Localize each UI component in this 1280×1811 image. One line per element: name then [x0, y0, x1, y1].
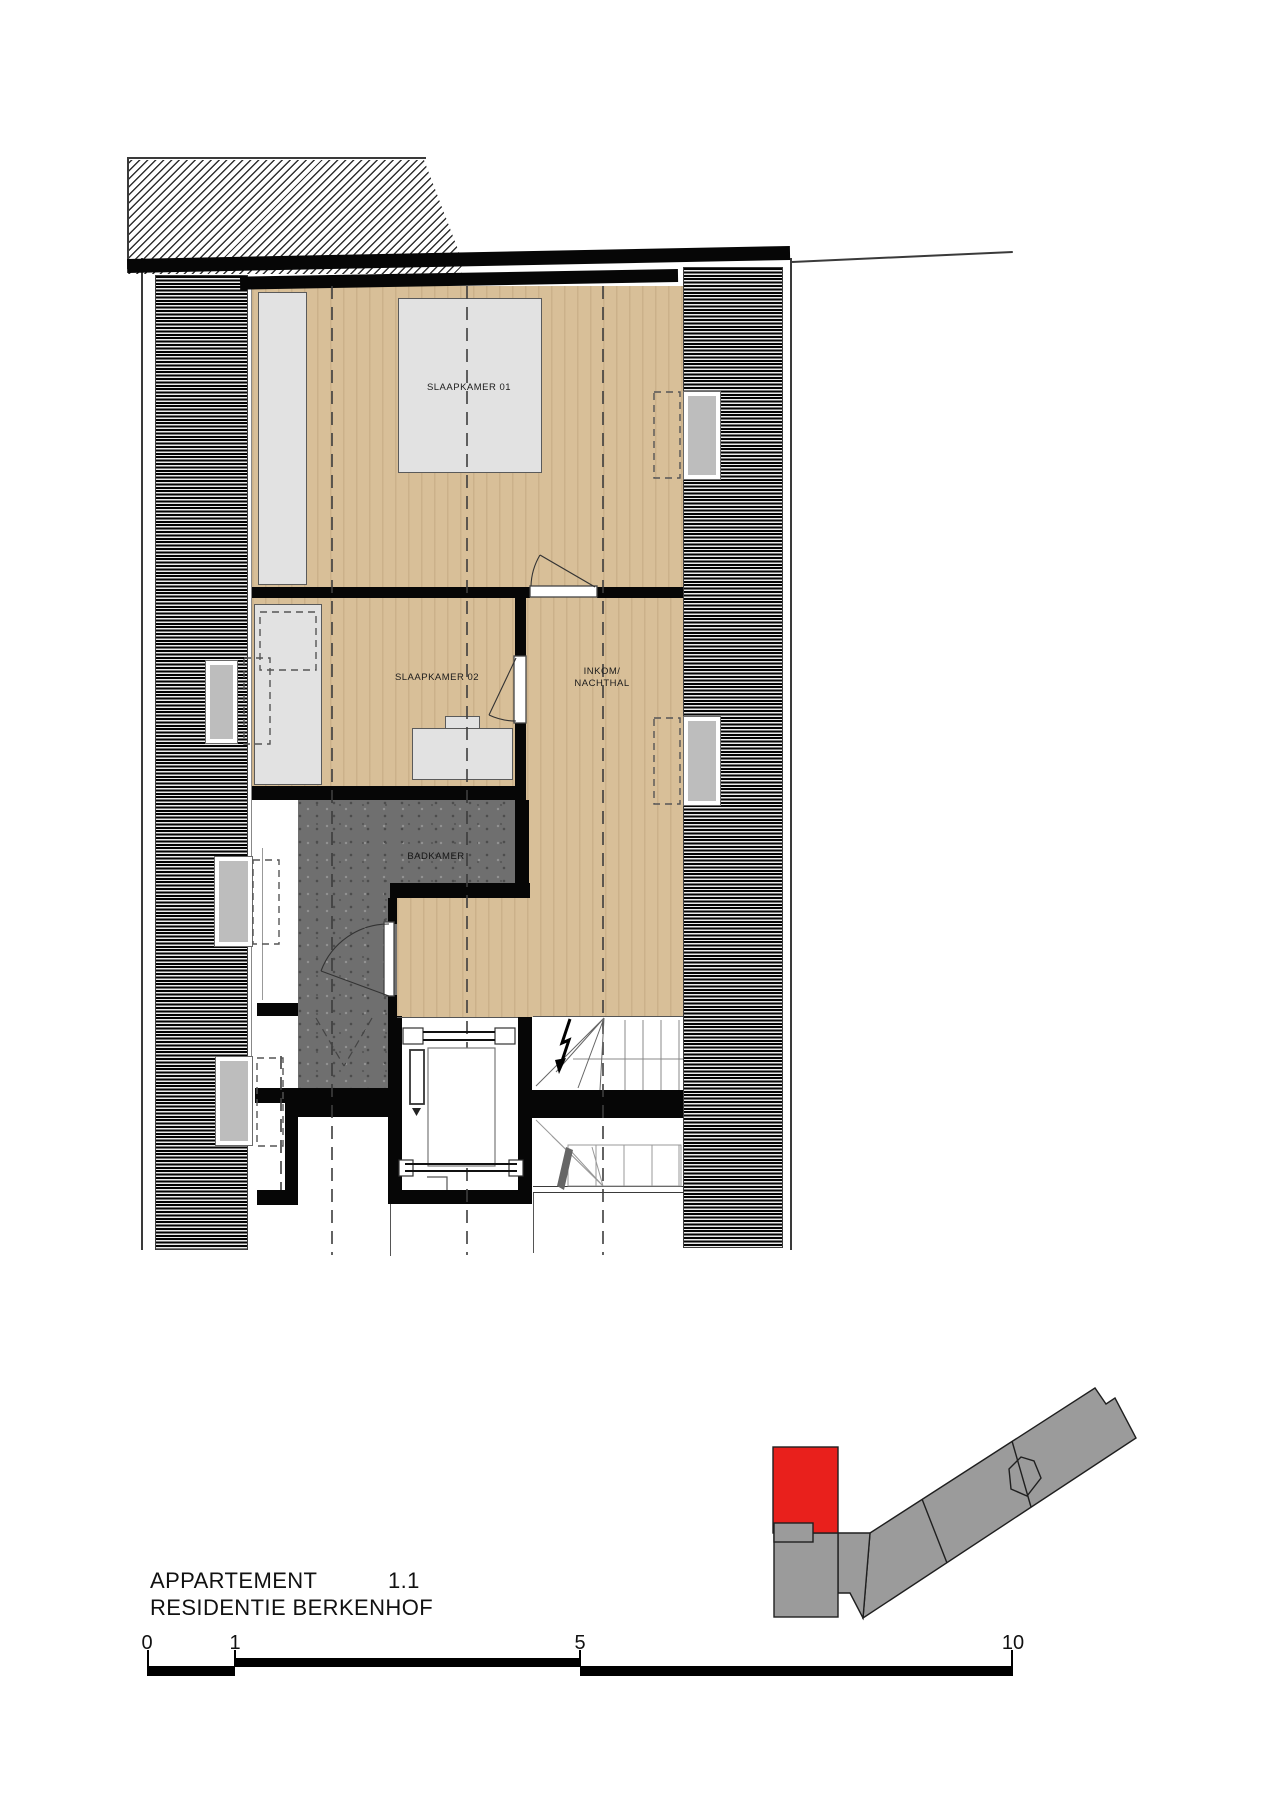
scale-label-10: 10 — [1002, 1632, 1024, 1655]
title-line2: RESIDENTIE BERKENHOF — [150, 1595, 670, 1622]
wall-bedroom1-south-left — [252, 587, 530, 598]
apartment-number: 1.1 — [388, 1568, 420, 1594]
wall-bedroom2-east-upper — [515, 596, 526, 656]
window-glass — [210, 665, 233, 739]
stair-lower-bay — [533, 1118, 683, 1193]
right-window-2 — [683, 716, 721, 806]
right-facade-line — [790, 258, 792, 1250]
left-window-1 — [205, 660, 238, 744]
core-line-mid — [533, 1193, 534, 1253]
keymap-highlight-unit — [773, 1447, 838, 1533]
key-map — [773, 1388, 1136, 1618]
wall-bathroom-south — [255, 1088, 388, 1103]
keymap-division-1 — [922, 1499, 947, 1563]
keymap-division-2 — [1012, 1441, 1031, 1507]
scale-upper-row — [147, 1658, 1013, 1667]
left-facade-line — [141, 258, 143, 1250]
wall-bathroom-door-jamb-top — [388, 898, 397, 924]
left-void-line — [262, 848, 263, 1000]
title-block: APPARTEMENT 1.1 RESIDENTIE BERKENHOF — [150, 1568, 670, 1622]
wall-bedroom1-south-right — [597, 587, 683, 598]
scale-bar: 0 1 5 10 — [147, 1632, 1013, 1680]
elevator-top-edge-line — [397, 1017, 518, 1018]
left-window-3 — [215, 1056, 253, 1146]
wall-left-pier — [257, 1003, 298, 1016]
bedroom2-bed — [254, 604, 322, 785]
wall-elevator-east — [518, 1017, 532, 1192]
bedroom1-label: SLAAPKAMER 01 — [427, 382, 511, 394]
roof-hatch-left-line — [127, 157, 129, 269]
roof-hatch-top-line — [127, 157, 426, 159]
wall-southwest-foot — [257, 1190, 298, 1205]
right-window-1 — [683, 391, 721, 480]
stair-upper-edge-line — [533, 1016, 683, 1017]
keymap-tab — [774, 1523, 813, 1542]
window-glass — [688, 721, 716, 801]
keymap-wing — [863, 1388, 1136, 1618]
room-left-edge-line — [251, 286, 252, 1088]
roof-ridge-line — [792, 251, 1013, 263]
wall-elevator-south — [388, 1190, 532, 1204]
bedroom1-closet — [258, 292, 307, 585]
left-void-strip — [252, 790, 298, 1088]
keymap-core — [1009, 1457, 1041, 1496]
bedroom2-monitor — [445, 716, 480, 729]
wall-stair-middle — [531, 1090, 683, 1118]
bathroom-label: BADKAMER — [407, 851, 464, 863]
wall-bedroom2-east-lower — [515, 723, 526, 800]
floor-plan-canvas: SLAAPKAMER 01 SLAAPKAMER 02 INKOM/ NACHT… — [0, 0, 1280, 1811]
stair-bottom-line-1 — [533, 1186, 683, 1187]
wall-elevator-west — [388, 1016, 402, 1192]
keymap-connector — [838, 1533, 870, 1618]
hall-label-line1: INKOM/ — [584, 666, 621, 677]
left-window-2 — [214, 856, 253, 947]
wall-southwest-vertical — [285, 1117, 298, 1192]
scale-segment-0-1 — [147, 1667, 235, 1676]
window-glass — [219, 861, 248, 942]
stair-upper-bay — [533, 1017, 683, 1090]
scale-lower-row — [147, 1667, 1013, 1676]
window-glass — [220, 1061, 248, 1141]
hall-label-line2: NACHTHAL — [574, 678, 629, 689]
wall-bathroom-south-2 — [285, 1103, 388, 1117]
scale-segment-1-5 — [235, 1658, 580, 1667]
scale-segment-5-10 — [580, 1667, 1013, 1676]
title-line1: APPARTEMENT — [150, 1568, 317, 1593]
bedroom2-desk — [412, 728, 513, 780]
wall-bathroom-step — [390, 883, 530, 898]
core-line-left — [390, 1204, 391, 1256]
window-glass — [688, 396, 716, 475]
bedroom2-label: SLAAPKAMER 02 — [395, 672, 479, 684]
wall-bathroom-north — [252, 786, 515, 800]
keymap-block — [774, 1533, 838, 1617]
hall-label: INKOM/ NACHTHAL — [574, 666, 629, 690]
stair-bottom-line-2 — [533, 1192, 683, 1193]
elevator-shaft-interior — [402, 1017, 518, 1190]
